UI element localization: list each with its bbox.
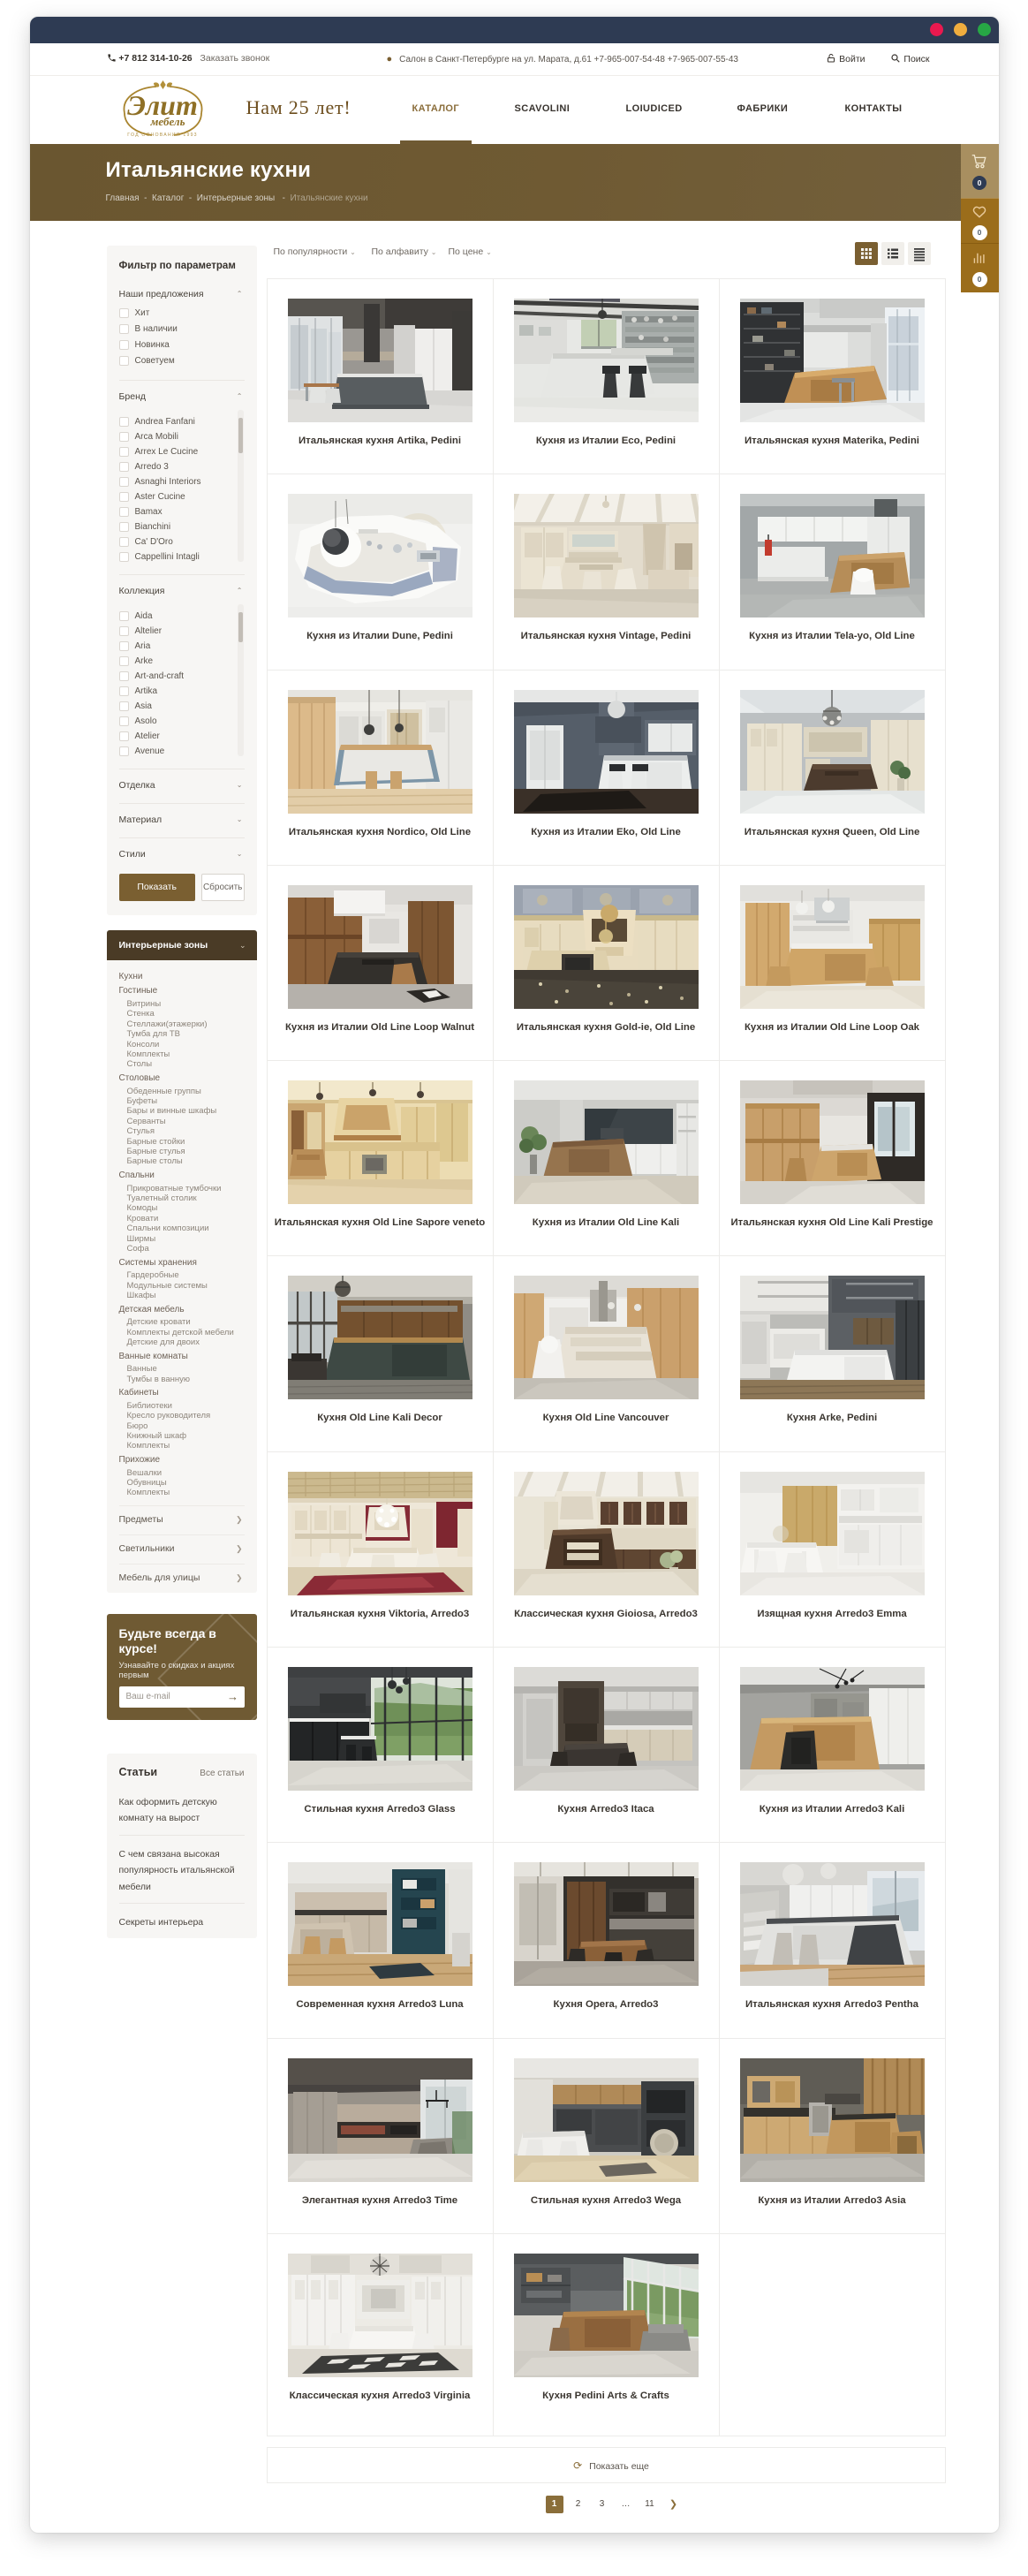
svg-text:мебель: мебель: [149, 115, 185, 128]
svg-text:ГОД ОСНОВАНИЯ 1993: ГОД ОСНОВАНИЯ 1993: [127, 133, 198, 138]
